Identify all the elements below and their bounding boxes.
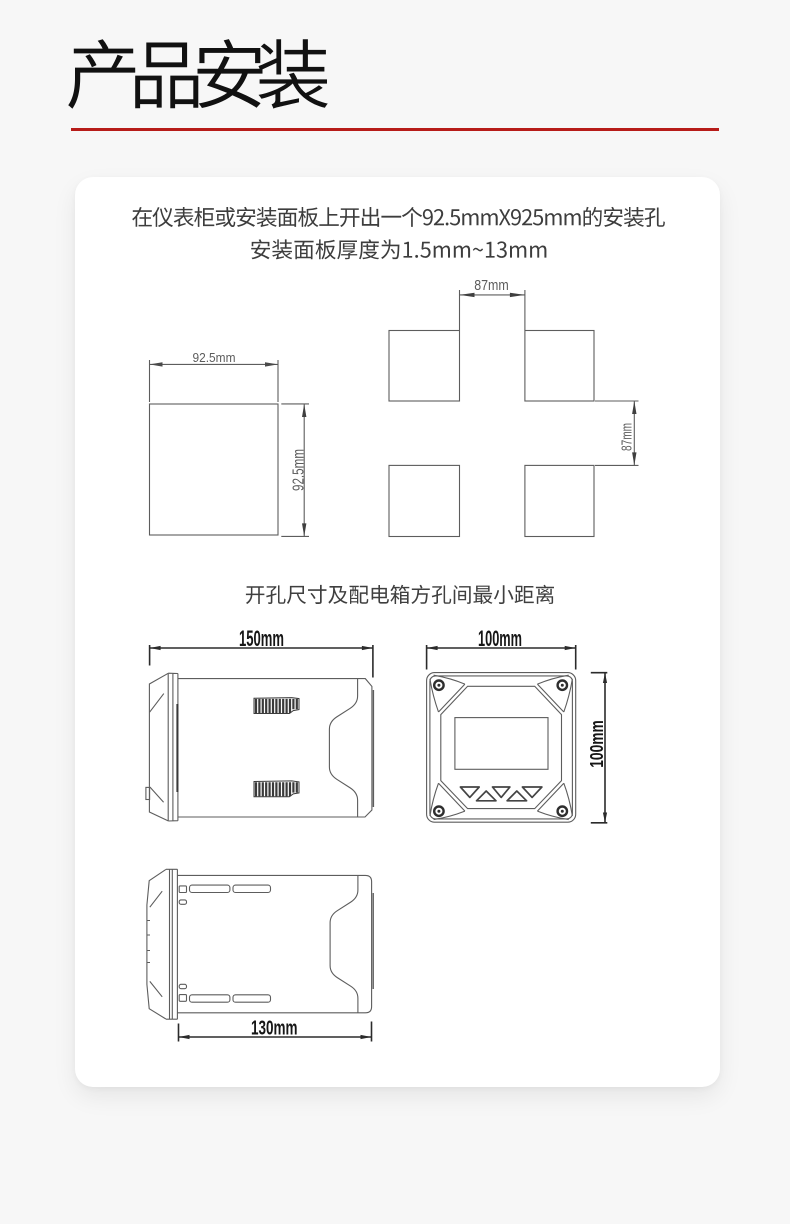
svg-text:130mm: 130mm — [251, 1018, 298, 1040]
svg-text:87mm: 87mm — [474, 278, 509, 294]
svg-text:100mm: 100mm — [587, 720, 607, 768]
svg-text:87mm: 87mm — [620, 423, 636, 451]
svg-text:92.5mm: 92.5mm — [290, 449, 307, 491]
svg-text:92.5mm: 92.5mm — [193, 350, 236, 365]
